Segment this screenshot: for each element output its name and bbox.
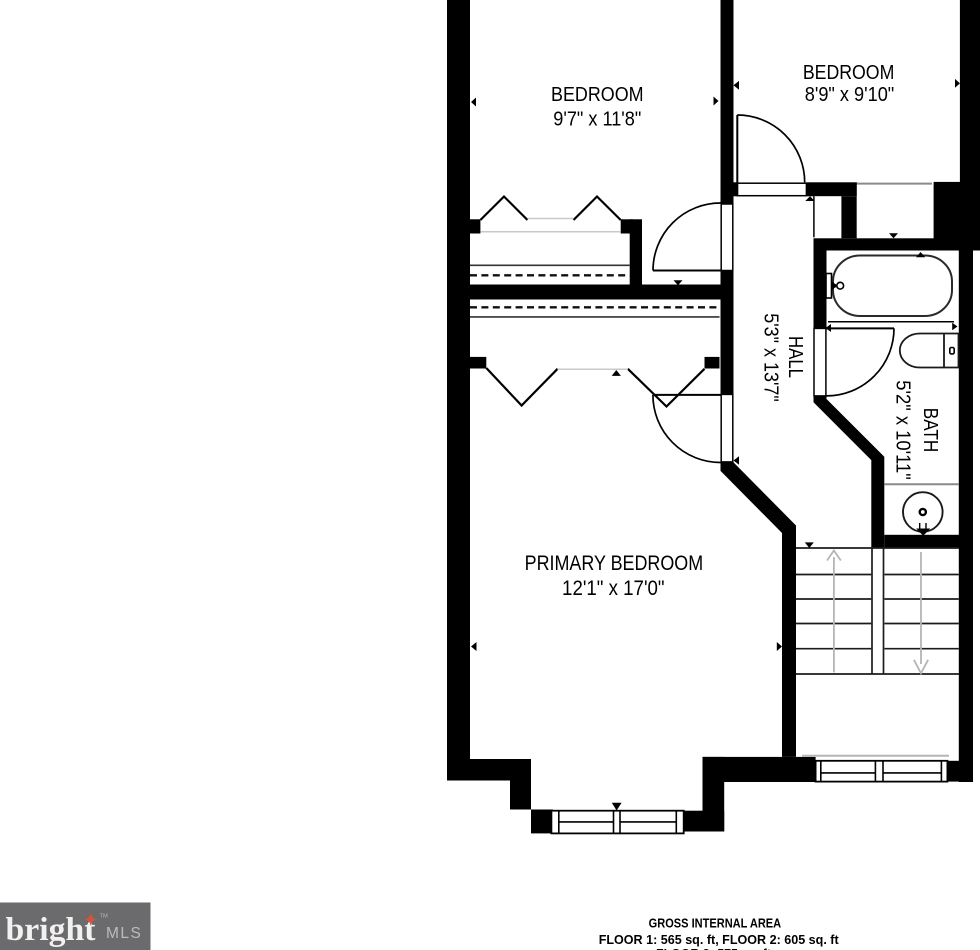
svg-text:BEDROOM: BEDROOM (551, 83, 644, 106)
svg-text:FLOOR 3: 575 sq. ft: FLOOR 3: 575 sq. ft (656, 946, 772, 950)
svg-text:9'7" x 11'8": 9'7" x 11'8" (553, 107, 641, 130)
svg-text:12'1" x 17'0": 12'1" x 17'0" (562, 577, 665, 600)
svg-text:8'9" x 9'10": 8'9" x 9'10" (805, 83, 895, 106)
svg-text:MLS: MLS (106, 925, 142, 942)
svg-text:TM: TM (100, 914, 109, 920)
svg-text:FLOOR 1: 565 sq. ft, FLOOR 2:: FLOOR 1: 565 sq. ft, FLOOR 2: 605 sq. ft (599, 932, 840, 947)
svg-text:HALL: HALL (784, 336, 807, 378)
svg-text:5'3" x 13'7": 5'3" x 13'7" (760, 313, 783, 402)
svg-text:PRIMARY BEDROOM: PRIMARY BEDROOM (525, 552, 704, 575)
svg-text:bright: bright (6, 912, 96, 948)
svg-text:BEDROOM: BEDROOM (803, 61, 895, 84)
svg-text:BATH: BATH (919, 408, 942, 453)
svg-text:GROSS INTERNAL AREA: GROSS INTERNAL AREA (649, 915, 782, 930)
svg-text:5'2" x 10'11": 5'2" x 10'11" (892, 380, 915, 480)
